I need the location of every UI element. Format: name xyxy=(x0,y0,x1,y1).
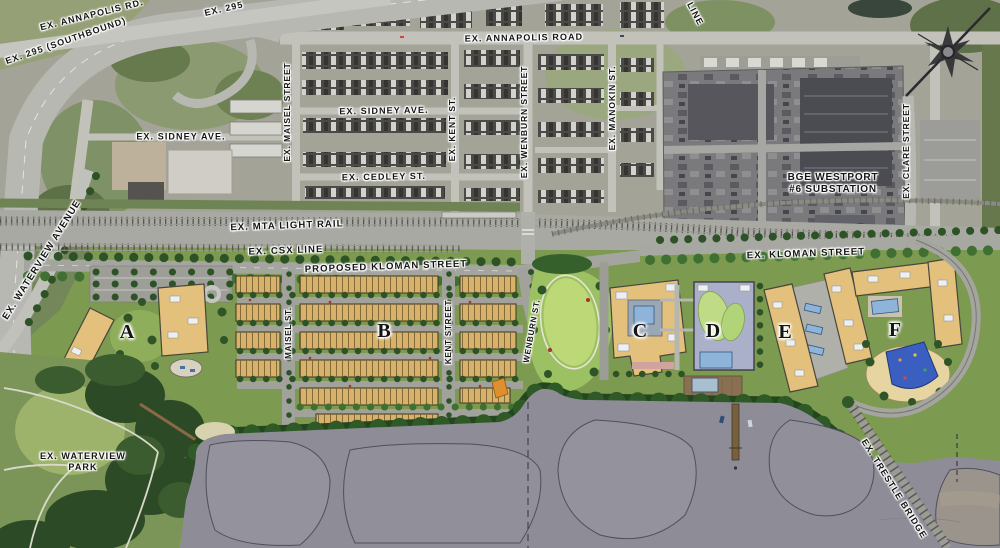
label-block-d: D xyxy=(706,319,720,343)
label-kent-street-site: KENT STREET xyxy=(444,300,454,364)
label-kent-st-ex: EX. KENT ST. xyxy=(447,97,457,162)
waterview-park-line1: EX. WATERVIEW xyxy=(40,451,126,462)
label-block-c: C xyxy=(633,319,647,343)
map-labels: EX. ANNAPOLIS RD. EX. 295 (SOUTHBOUND) E… xyxy=(0,0,1000,548)
label-sidney-ave-left: EX. SIDNEY AVE. xyxy=(136,132,225,143)
waterview-park-line2: PARK xyxy=(40,462,126,473)
label-manokin-st-ex: EX. MANOKIN ST. xyxy=(607,66,617,151)
label-maisel-street-ex: EX. MAISEL STREET xyxy=(282,62,292,161)
label-bge-substation: BGE WESTPORT #6 SUBSTATION xyxy=(788,172,879,196)
label-maisel-st-site: MAISEL ST. xyxy=(284,307,294,359)
label-mta-light-rail: EX. MTA LIGHT RAIL xyxy=(230,218,344,233)
label-block-b: B xyxy=(377,319,390,343)
label-block-e: E xyxy=(778,320,791,344)
label-waterview-park: EX. WATERVIEW PARK xyxy=(40,451,126,473)
label-block-a: A xyxy=(120,320,134,344)
label-wenburn-street-ex: EX. WENBURN STREET xyxy=(519,66,529,179)
label-wenburn-st-site: WENBURN ST. xyxy=(522,298,543,363)
label-295: EX. 295 xyxy=(203,0,244,19)
label-clare-street-ex: EX. CLARE STREET xyxy=(901,103,911,199)
label-cedley-st: EX. CEDLEY ST. xyxy=(342,171,426,183)
label-block-f: F xyxy=(889,318,901,342)
label-line-partial: LINE xyxy=(684,0,705,27)
label-proposed-kloman: PROPOSED KLOMAN STREET xyxy=(305,258,468,275)
label-csx-line: EX. CSX LINE xyxy=(248,244,323,258)
label-trestle-bridge: EX. TRESTLE BRIDGE xyxy=(859,437,929,541)
label-waterview-avenue: EX. WATERVIEW AVENUE xyxy=(0,198,83,322)
label-sidney-ave: EX. SIDNEY AVE. xyxy=(339,105,429,117)
bge-line2: #6 SUBSTATION xyxy=(788,184,879,196)
label-annapolis-road: EX. ANNAPOLIS ROAD xyxy=(465,32,584,45)
site-plan-map: EX. ANNAPOLIS RD. EX. 295 (SOUTHBOUND) E… xyxy=(0,0,1000,548)
label-ex-kloman: EX. KLOMAN STREET xyxy=(747,246,866,262)
bge-line1: BGE WESTPORT xyxy=(788,172,879,184)
